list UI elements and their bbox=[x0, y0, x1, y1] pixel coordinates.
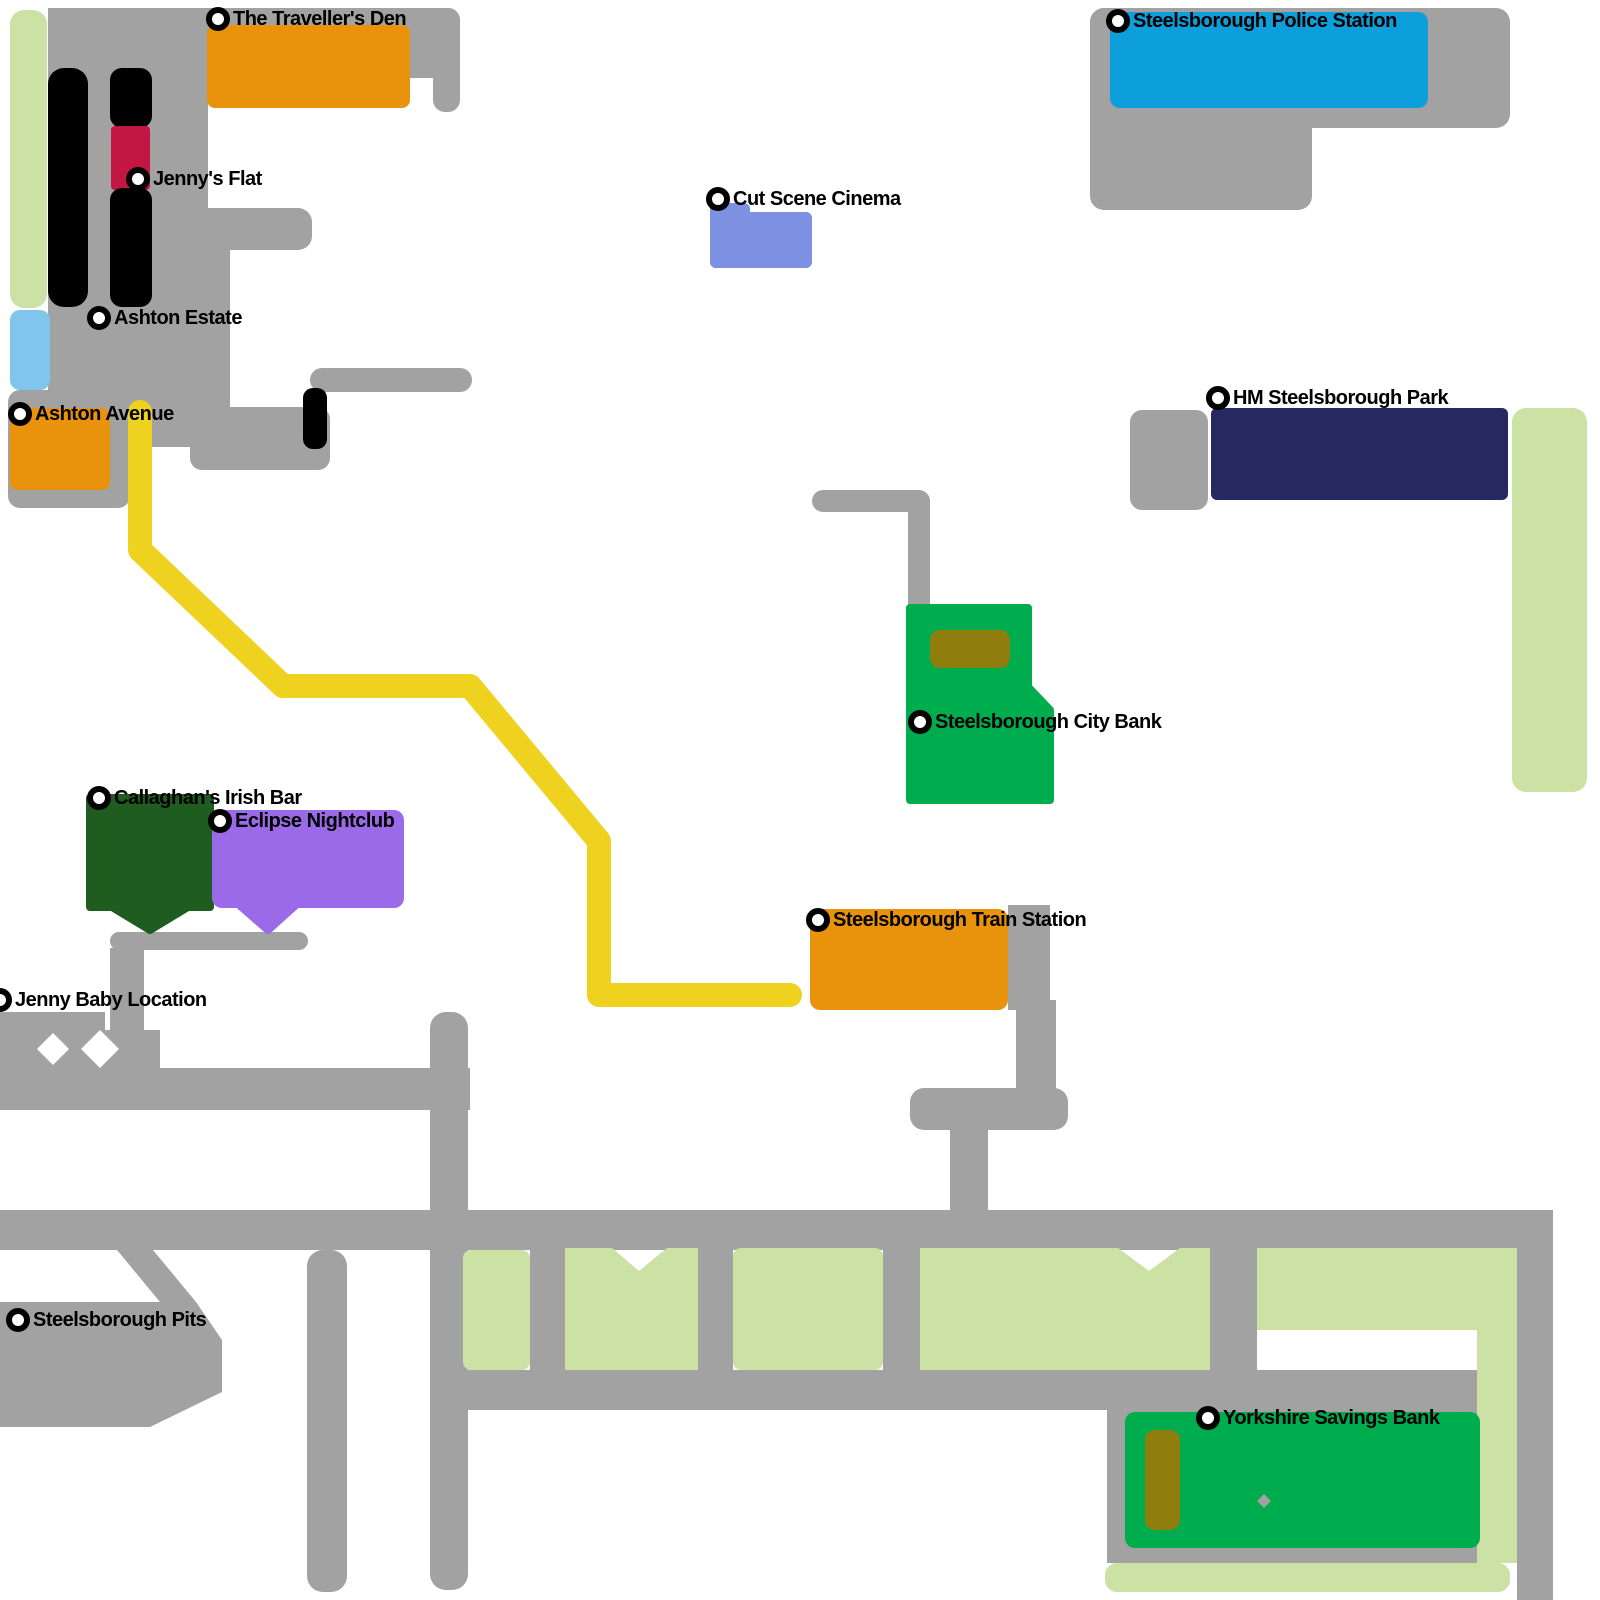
road-junction-cross bbox=[0, 1030, 160, 1068]
road-junction-band bbox=[0, 1012, 105, 1032]
map-marker-yorkshire-savings-bank[interactable]: Yorkshire Savings Bank bbox=[1196, 1406, 1440, 1430]
road-mid-horizontal bbox=[0, 1068, 470, 1110]
building-travellers-den bbox=[207, 25, 410, 108]
map-marker-jennys-flat[interactable]: Jenny's Flat bbox=[126, 167, 262, 191]
location-label: Yorkshire Savings Bank bbox=[1223, 1408, 1440, 1428]
location-label: Cut Scene Cinema bbox=[733, 189, 901, 209]
location-label: HM Steelsborough Park bbox=[1233, 388, 1448, 408]
green-block-4 bbox=[920, 1248, 1210, 1370]
green-strip-east bbox=[1512, 408, 1587, 792]
location-label: Steelsborough City Bank bbox=[935, 712, 1161, 732]
location-pin-icon bbox=[126, 167, 150, 191]
road-station-stem bbox=[950, 1130, 988, 1215]
green-strip-south bbox=[1105, 1563, 1510, 1592]
road-station-drop bbox=[1016, 1000, 1056, 1095]
location-pin-icon bbox=[8, 402, 32, 426]
location-pin-icon bbox=[87, 306, 111, 330]
location-label: Ashton Estate bbox=[114, 308, 242, 328]
road-block-gap-1 bbox=[530, 1250, 565, 1370]
road-pits-link bbox=[117, 1250, 196, 1302]
location-pin-icon bbox=[706, 187, 730, 211]
tower-2-lower bbox=[110, 188, 152, 307]
green-block-1 bbox=[463, 1250, 530, 1370]
location-label: Steelsborough Police Station bbox=[1133, 11, 1397, 31]
location-label: Jenny Baby Location bbox=[15, 990, 207, 1010]
location-label: Jenny's Flat bbox=[153, 169, 262, 189]
location-pin-icon bbox=[806, 908, 830, 932]
road-south-stub bbox=[307, 1250, 347, 1592]
location-pin-icon bbox=[208, 809, 232, 833]
map-marker-callaghans-irish-bar[interactable]: Callaghan's Irish Bar bbox=[87, 786, 302, 810]
road-lower-band bbox=[463, 1370, 1517, 1410]
building-callaghans-bar bbox=[90, 798, 210, 930]
location-label: The Traveller's Den bbox=[233, 9, 406, 29]
location-label: Ashton Avenue bbox=[35, 404, 174, 424]
city-map: The Traveller's DenSteelsborough Police … bbox=[0, 0, 1600, 1600]
building-city-bank-roof bbox=[930, 630, 1010, 668]
map-marker-jenny-baby-location[interactable]: Jenny Baby Location bbox=[0, 988, 207, 1012]
green-block-2 bbox=[565, 1248, 698, 1370]
location-pin-icon bbox=[1196, 1406, 1220, 1430]
road-station-bar bbox=[910, 1088, 1068, 1130]
map-marker-cut-scene-cinema[interactable]: Cut Scene Cinema bbox=[706, 187, 901, 211]
location-pin-icon bbox=[87, 786, 111, 810]
road-connector-vertical bbox=[430, 1012, 468, 1590]
location-pin-icon bbox=[0, 988, 12, 1012]
location-label: Steelsborough Pits bbox=[33, 1310, 206, 1330]
location-label: Steelsborough Train Station bbox=[833, 910, 1086, 930]
road-park-square bbox=[1130, 410, 1208, 510]
tower-2-upper bbox=[110, 68, 152, 128]
map-marker-steelsborough-pits[interactable]: Steelsborough Pits bbox=[6, 1308, 206, 1332]
road-block-gap-3 bbox=[883, 1248, 920, 1370]
map-marker-travellers-den[interactable]: The Traveller's Den bbox=[206, 7, 406, 31]
green-block-3 bbox=[733, 1248, 883, 1370]
road-block-gap-4 bbox=[1210, 1248, 1257, 1370]
tower-1 bbox=[48, 68, 88, 307]
location-label: Callaghan's Irish Bar bbox=[114, 788, 302, 808]
road-bank-vertical bbox=[908, 500, 930, 610]
map-marker-police-station[interactable]: Steelsborough Police Station bbox=[1106, 9, 1397, 33]
location-pin-icon bbox=[206, 7, 230, 31]
location-pin-icon bbox=[1206, 386, 1230, 410]
map-marker-train-station[interactable]: Steelsborough Train Station bbox=[806, 908, 1086, 932]
location-label: Eclipse Nightclub bbox=[235, 811, 394, 831]
green-strip-west bbox=[10, 10, 47, 308]
map-marker-ashton-avenue[interactable]: Ashton Avenue bbox=[8, 402, 174, 426]
road-block-gap-2 bbox=[698, 1248, 733, 1370]
map-marker-hm-park[interactable]: HM Steelsborough Park bbox=[1206, 386, 1448, 410]
road-thin-east bbox=[310, 368, 472, 392]
building-eclipse-tab bbox=[237, 903, 298, 930]
location-pin-icon bbox=[908, 710, 932, 734]
location-pin-icon bbox=[1106, 9, 1130, 33]
road-main-horizontal bbox=[0, 1210, 1553, 1250]
building-cinema-main bbox=[710, 212, 812, 268]
water-block bbox=[10, 310, 50, 390]
map-marker-ashton-estate[interactable]: Ashton Estate bbox=[87, 306, 242, 330]
road-estate-stub bbox=[207, 208, 312, 250]
location-pin-icon bbox=[6, 1308, 30, 1332]
road-top-right-stub bbox=[433, 8, 460, 112]
road-right-vertical bbox=[1517, 1210, 1553, 1600]
building-yorkshire-bank-roof bbox=[1145, 1430, 1180, 1530]
building-park bbox=[1211, 408, 1508, 500]
road-bar-row bbox=[110, 932, 308, 950]
map-marker-eclipse-nightclub[interactable]: Eclipse Nightclub bbox=[208, 809, 394, 833]
black-kiosk bbox=[303, 388, 327, 449]
map-marker-city-bank[interactable]: Steelsborough City Bank bbox=[908, 710, 1161, 734]
